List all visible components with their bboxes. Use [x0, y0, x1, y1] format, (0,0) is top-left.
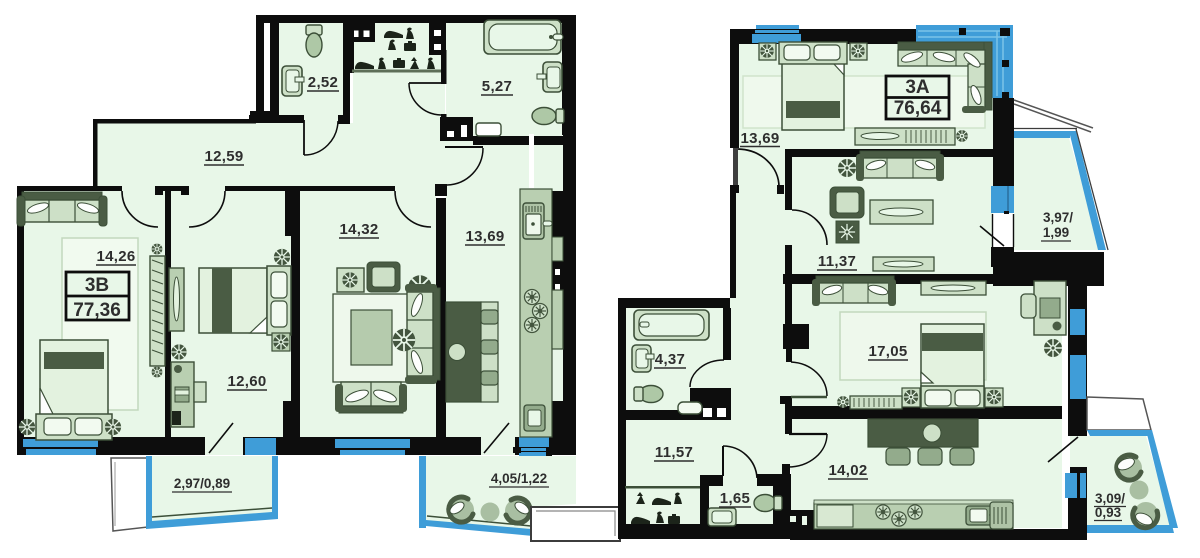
svg-text:3,09/: 3,09/ [1095, 491, 1125, 506]
svg-text:11,57: 11,57 [655, 444, 693, 461]
svg-text:3,97/: 3,97/ [1043, 210, 1073, 225]
svg-text:17,05: 17,05 [868, 343, 907, 360]
svg-text:14,26: 14,26 [96, 248, 135, 265]
svg-text:3B: 3B [85, 275, 109, 296]
svg-text:4,05/1,22: 4,05/1,22 [491, 471, 547, 486]
svg-text:0,93: 0,93 [1095, 505, 1122, 520]
svg-text:5,27: 5,27 [482, 78, 512, 95]
svg-text:2,52: 2,52 [308, 74, 338, 91]
svg-text:13,69: 13,69 [740, 130, 779, 147]
svg-text:11,37: 11,37 [818, 253, 856, 270]
svg-text:14,02: 14,02 [828, 462, 867, 479]
svg-text:1,99: 1,99 [1043, 225, 1069, 240]
svg-text:77,36: 77,36 [73, 300, 121, 321]
svg-text:1,65: 1,65 [720, 490, 750, 507]
svg-text:2,97/0,89: 2,97/0,89 [174, 476, 230, 491]
svg-text:12,59: 12,59 [204, 148, 243, 165]
svg-text:13,69: 13,69 [465, 228, 504, 245]
svg-text:3A: 3A [905, 77, 930, 98]
svg-text:14,32: 14,32 [339, 221, 378, 238]
svg-text:76,64: 76,64 [894, 98, 942, 119]
svg-text:4,37: 4,37 [655, 351, 685, 368]
svg-text:12,60: 12,60 [227, 373, 266, 390]
